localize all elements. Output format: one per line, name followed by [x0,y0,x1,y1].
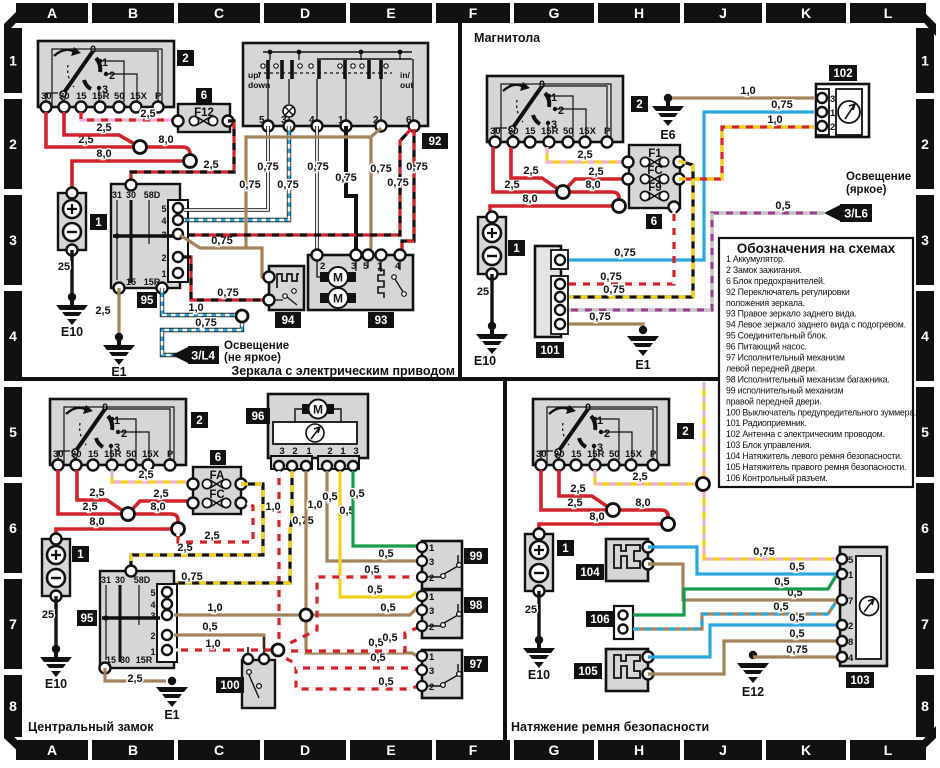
svg-text:J: J [719,742,727,758]
svg-text:4: 4 [848,653,854,664]
svg-text:25: 25 [477,286,489,298]
svg-text:2,5: 2,5 [89,487,104,499]
svg-text:2,5: 2,5 [567,497,582,509]
svg-text:5: 5 [921,424,929,440]
svg-text:J: J [719,5,727,21]
svg-text:1,0: 1,0 [188,302,203,314]
svg-text:Зеркала с электрическим привод: Зеркала с электрическим приводом [231,364,455,378]
svg-text:31: 31 [112,190,122,200]
svg-text:out: out [400,80,413,90]
svg-text:0,75: 0,75 [589,311,610,323]
svg-text:95: 95 [141,295,154,307]
svg-text:1: 1 [9,53,17,69]
svg-text:3: 3 [921,232,929,248]
svg-text:2,5: 2,5 [588,166,603,178]
svg-text:98: 98 [470,600,483,612]
svg-text:E: E [386,5,395,21]
svg-text:101: 101 [540,345,560,357]
svg-text:Центральный замок: Центральный замок [28,720,154,734]
svg-text:2,5: 2,5 [504,179,519,191]
svg-text:1,0: 1,0 [205,638,220,650]
svg-text:2: 2 [150,631,155,641]
svg-text:E1: E1 [164,708,179,722]
svg-text:95: 95 [81,613,94,625]
svg-text:1: 1 [77,549,84,561]
svg-text:0,5: 0,5 [322,491,337,503]
svg-text:K: K [801,5,811,21]
svg-text:1: 1 [306,446,312,457]
svg-text:2,5: 2,5 [140,108,155,120]
svg-text:F: F [469,5,478,21]
svg-text:B: B [128,742,138,758]
svg-text:8,0: 8,0 [585,179,600,191]
svg-text:0,75: 0,75 [771,99,792,111]
svg-text:8: 8 [9,698,17,714]
svg-text:0,75: 0,75 [181,571,202,583]
svg-text:L: L [884,5,893,21]
svg-text:1: 1 [340,446,346,457]
svg-text:0,75: 0,75 [600,271,621,283]
svg-text:2,5: 2,5 [203,159,218,171]
svg-text:1: 1 [513,243,520,255]
svg-text:105: 105 [578,666,598,678]
svg-text:92: 92 [429,136,442,148]
svg-text:A: A [47,742,57,758]
svg-text:25: 25 [525,604,537,616]
svg-text:3: 3 [9,232,17,248]
svg-text:8,0: 8,0 [150,501,165,513]
svg-text:2: 2 [9,136,17,152]
svg-text:0,75: 0,75 [387,177,408,189]
svg-text:2,5: 2,5 [82,501,97,513]
svg-text:2,5: 2,5 [127,673,142,685]
svg-text:96: 96 [252,411,265,423]
svg-text:2,5: 2,5 [577,149,592,161]
svg-text:7: 7 [921,616,929,632]
svg-text:30: 30 [115,575,125,585]
svg-text:2,5: 2,5 [153,488,168,500]
svg-text:0,5: 0,5 [382,632,397,644]
svg-text:2: 2 [161,253,166,263]
svg-text:M: M [333,292,343,306]
svg-text:8,0: 8,0 [635,497,650,509]
svg-text:4: 4 [161,216,166,226]
svg-text:5: 5 [848,555,854,566]
svg-text:down: down [248,80,270,90]
svg-text:C: C [214,742,224,758]
svg-text:0,75: 0,75 [211,235,232,247]
svg-text:C: C [214,5,224,21]
svg-text:H: H [634,742,644,758]
svg-text:З/L6: З/L6 [844,209,868,221]
svg-text:0,5: 0,5 [370,652,385,664]
svg-text:(не яркое): (не яркое) [224,352,281,364]
svg-text:99: 99 [470,551,483,563]
svg-text:E10: E10 [45,677,67,691]
svg-text:E10: E10 [474,354,496,368]
svg-text:4: 4 [921,328,929,344]
svg-text:2: 2 [320,261,325,272]
svg-text:0,5: 0,5 [775,200,790,212]
svg-text:0,75: 0,75 [195,317,216,329]
svg-text:0,5: 0,5 [202,621,217,633]
svg-text:1,0: 1,0 [767,114,782,126]
svg-text:104: 104 [580,567,600,579]
svg-text:in/: in/ [400,70,411,80]
svg-text:B: B [128,5,138,21]
svg-text:3: 3 [830,94,835,105]
svg-text:0,5: 0,5 [773,601,788,613]
svg-text:8,0: 8,0 [89,516,104,528]
svg-text:E12: E12 [742,685,764,699]
svg-text:5: 5 [161,204,166,214]
svg-text:30: 30 [120,655,130,665]
svg-text:58D: 58D [134,575,151,585]
svg-text:1,0: 1,0 [265,501,280,513]
svg-text:1: 1 [161,269,166,279]
svg-text:K: K [801,742,811,758]
svg-text:D: D [300,5,310,21]
svg-text:0,5: 0,5 [378,548,393,560]
svg-text:15: 15 [126,277,136,287]
svg-text:0,75: 0,75 [239,179,260,191]
svg-text:1,0: 1,0 [307,499,322,511]
svg-text:97: 97 [470,659,483,671]
svg-text:E10: E10 [61,325,83,339]
svg-text:2: 2 [830,122,835,133]
svg-text:0,5: 0,5 [364,564,379,576]
svg-text:up/: up/ [248,70,261,80]
svg-text:5: 5 [150,588,155,598]
svg-text:2,5: 2,5 [95,305,110,317]
svg-text:3: 3 [150,611,155,621]
svg-text:25: 25 [58,261,70,273]
svg-text:0,75: 0,75 [603,284,624,296]
svg-text:1: 1 [95,217,102,229]
svg-text:2: 2 [682,426,688,438]
svg-text:2,5: 2,5 [523,165,538,177]
svg-text:8: 8 [921,698,929,714]
svg-text:E1: E1 [635,358,650,372]
svg-text:8,0: 8,0 [96,148,111,160]
svg-text:7: 7 [848,596,853,607]
svg-text:M: M [333,271,343,285]
svg-text:D: D [300,742,310,758]
svg-text:E10: E10 [528,668,550,682]
svg-text:2: 2 [182,53,188,65]
svg-text:6: 6 [215,452,221,464]
svg-text:Освещение: Освещение [224,340,289,352]
svg-text:2,5: 2,5 [204,530,219,542]
svg-text:6: 6 [9,520,17,536]
svg-text:93: 93 [375,315,388,327]
svg-text:2,5: 2,5 [570,483,585,495]
svg-text:2: 2 [196,415,202,427]
svg-text:102: 102 [833,68,852,80]
svg-text:E6: E6 [660,128,675,142]
svg-text:7: 7 [9,616,17,632]
svg-text:100: 100 [220,680,239,692]
svg-text:0,5: 0,5 [789,561,804,573]
svg-text:0,75: 0,75 [307,161,328,173]
svg-text:103: 103 [850,675,869,687]
svg-text:1: 1 [150,647,155,657]
svg-text:106: 106 [590,614,609,626]
svg-text:0,5: 0,5 [378,676,393,688]
svg-text:3: 3 [353,446,358,457]
svg-text:0,75: 0,75 [753,546,774,558]
svg-text:8,0: 8,0 [589,511,604,523]
svg-text:2: 2 [848,621,853,632]
svg-text:2: 2 [921,136,929,152]
svg-text:6: 6 [201,90,207,102]
svg-text:G: G [549,742,560,758]
svg-text:1,0: 1,0 [207,602,222,614]
svg-text:1: 1 [848,570,854,581]
svg-text:2,5: 2,5 [632,471,647,483]
svg-text:8,0: 8,0 [522,193,537,205]
svg-text:0,5: 0,5 [789,628,804,640]
svg-text:0,5: 0,5 [380,602,395,614]
svg-text:8: 8 [848,637,853,648]
svg-text:(яркое): (яркое) [846,184,887,196]
svg-text:0,5: 0,5 [789,612,804,624]
svg-text:3: 3 [161,230,166,240]
svg-text:M: M [313,403,323,417]
svg-text:0,5: 0,5 [349,488,364,500]
svg-text:6: 6 [651,216,657,228]
svg-text:31: 31 [101,575,111,585]
svg-text:Освещение: Освещение [846,171,911,183]
svg-text:2: 2 [327,446,332,457]
svg-text:8,0: 8,0 [158,134,173,146]
svg-text:E1: E1 [111,365,126,379]
svg-text:2: 2 [636,99,642,111]
svg-text:1: 1 [562,543,569,555]
svg-text:0,75: 0,75 [292,515,313,527]
svg-text:1: 1 [830,108,836,119]
svg-text:0,75: 0,75 [614,247,635,259]
svg-text:0,75: 0,75 [335,172,356,184]
svg-text:0,5: 0,5 [368,637,383,649]
svg-text:З/L4: З/L4 [191,351,215,363]
svg-text:5: 5 [9,424,17,440]
svg-text:Магнитола: Магнитола [474,31,541,45]
svg-text:0,5: 0,5 [367,584,382,596]
svg-text:4: 4 [9,328,17,344]
svg-text:Натяжение ремня безопасности: Натяжение ремня безопасности [511,720,709,734]
svg-text:0,5: 0,5 [774,576,789,588]
svg-text:2,5: 2,5 [96,122,111,134]
svg-text:1,0: 1,0 [740,85,755,97]
svg-text:6: 6 [921,520,929,536]
svg-text:2,5: 2,5 [138,469,153,481]
svg-text:4: 4 [150,600,155,610]
svg-text:A: A [47,5,57,21]
svg-text:L: L [884,742,893,758]
svg-text:0,75: 0,75 [370,163,391,175]
svg-text:0,75: 0,75 [786,644,807,656]
svg-text:G: G [549,5,560,21]
svg-text:H: H [634,5,644,21]
svg-text:F: F [469,742,478,758]
svg-text:0,75: 0,75 [257,161,278,173]
svg-text:2: 2 [292,446,297,457]
svg-text:94: 94 [282,315,295,327]
svg-text:3: 3 [279,446,284,457]
svg-text:E: E [386,742,395,758]
svg-text:2,5: 2,5 [177,542,192,554]
svg-text:25: 25 [42,609,54,621]
svg-text:0,75: 0,75 [277,179,298,191]
svg-text:1: 1 [921,53,929,69]
svg-text:0,75: 0,75 [406,161,427,173]
svg-text:0,75: 0,75 [217,287,238,299]
svg-text:58D: 58D [144,190,161,200]
